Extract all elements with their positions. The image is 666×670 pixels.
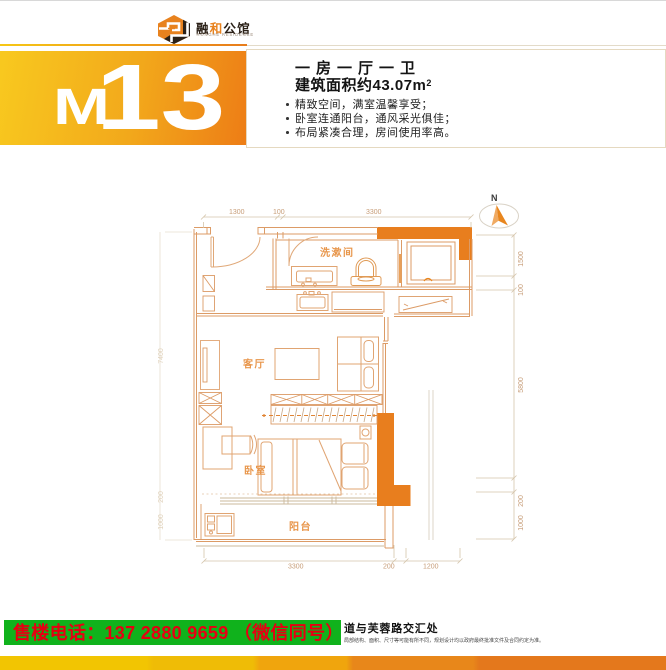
svg-text:100: 100 bbox=[518, 284, 525, 296]
svg-text:1000: 1000 bbox=[158, 514, 165, 530]
svg-text:1300: 1300 bbox=[229, 209, 245, 216]
svg-text:5800: 5800 bbox=[518, 377, 525, 393]
svg-text:100: 100 bbox=[273, 209, 285, 216]
svg-text:7400: 7400 bbox=[158, 348, 165, 364]
svg-text:客厅: 客厅 bbox=[242, 358, 266, 371]
svg-text:3300: 3300 bbox=[366, 209, 382, 216]
svg-text:200: 200 bbox=[518, 495, 525, 507]
svg-text:1200: 1200 bbox=[423, 564, 439, 571]
svg-text:3300: 3300 bbox=[288, 564, 304, 571]
svg-text:1000: 1000 bbox=[518, 515, 525, 531]
svg-text:阳台: 阳台 bbox=[289, 520, 312, 533]
svg-text:N: N bbox=[491, 193, 498, 203]
svg-text:洗漱间: 洗漱间 bbox=[320, 246, 355, 259]
svg-text:1500: 1500 bbox=[518, 251, 525, 267]
svg-text:200: 200 bbox=[383, 564, 395, 571]
svg-text:卧室: 卧室 bbox=[244, 464, 267, 477]
svg-text:200: 200 bbox=[158, 491, 165, 503]
